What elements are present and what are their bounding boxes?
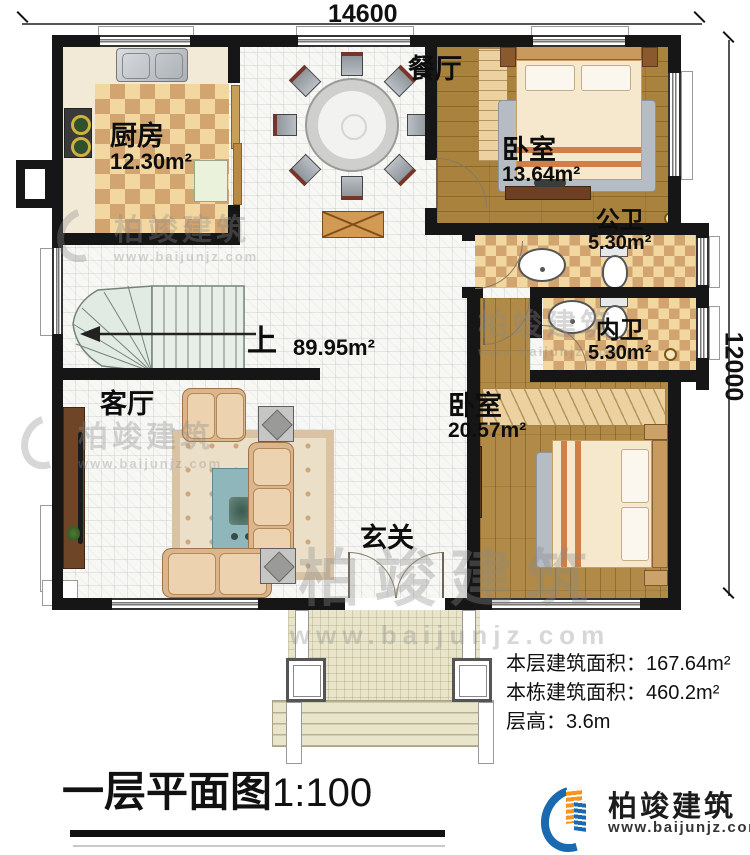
dimension-tick [16, 11, 28, 23]
stat-floor-area-value: 167.64m² [646, 653, 731, 675]
dining-chair [341, 52, 363, 76]
bedroom2-area: 20.57m² [448, 420, 526, 442]
public-bath-area: 5.30m² [588, 233, 651, 254]
burner [71, 137, 91, 157]
wall-bedroom2-left [467, 298, 480, 610]
porch-post [478, 702, 494, 764]
stat-floor-area: 本层建筑面积：167.64m² [506, 650, 731, 679]
side-table [258, 406, 294, 442]
quilt-stripe [575, 441, 581, 567]
stat-storey-height-value: 3.6m [566, 711, 610, 733]
stairs-up-text: 上 [247, 325, 277, 358]
table-dot [231, 533, 238, 540]
room-label-living: 客厅 [100, 390, 154, 418]
kitchen-sliding-door [231, 85, 240, 149]
sink-basin [122, 53, 150, 79]
porch-steps [272, 700, 494, 747]
window [696, 308, 709, 358]
room-label-ensuite-bath: 内卫 5.30m² [588, 318, 651, 364]
sofa-cushion [253, 448, 291, 486]
stat-storey-height: 层高：3.6m [506, 708, 731, 737]
entrance-opening [345, 598, 445, 610]
sofa-bottom [162, 548, 272, 598]
plant-icon [67, 526, 80, 541]
floor-plan-canvas: 柏竣建筑 www.baijunjz.com 柏竣建筑 www.baijunjz.… [0, 0, 750, 855]
dining-table [305, 78, 399, 172]
tv-screen [78, 432, 83, 544]
brand-logo-icon [540, 781, 602, 843]
bedroom1-name: 卧室 [502, 135, 556, 165]
brand-website: www.baijunjz.com [608, 819, 750, 836]
window-sill [681, 71, 693, 180]
public-bath-toilet [602, 255, 628, 289]
quilt-stripe [561, 441, 567, 567]
wall-ensuite-bottom [530, 370, 709, 382]
wall-ensuite-inner [530, 298, 542, 338]
column-detail [459, 665, 487, 697]
nightstand [644, 424, 668, 440]
room-label-dining: 餐厅 [408, 55, 462, 83]
window [100, 35, 190, 47]
wall-kitchen-right [228, 35, 240, 83]
wall-right-lower [668, 382, 681, 610]
wall-bath-left [462, 223, 475, 241]
fridge [194, 160, 228, 202]
window [112, 598, 258, 610]
public-bath-name: 公卫 [596, 207, 644, 234]
window-sill [709, 236, 720, 288]
plan-title-text: 一层平面图 [62, 768, 272, 815]
room-label-public-bath: 公卫 5.30m² [588, 208, 651, 254]
title-underline-shadow [73, 845, 445, 847]
dimension-right-label: 12000 [719, 322, 748, 412]
window [52, 248, 63, 334]
nightstand [500, 47, 516, 67]
pillow [525, 65, 575, 91]
room-label-foyer: 玄关 [360, 524, 414, 552]
window [298, 35, 410, 47]
door-leaf [348, 552, 350, 598]
public-bath-sink [518, 248, 566, 282]
logo-building-blue [574, 800, 586, 832]
kitchen-double-sink [116, 48, 188, 82]
side-table [260, 548, 296, 584]
stairs [60, 282, 262, 376]
hall-area-label: 89.95m² [293, 336, 375, 359]
brand-logo: 柏竣建筑 www.baijunjz.com [540, 775, 745, 850]
ensuite-bath-area: 5.30m² [588, 343, 651, 364]
wall-kitchen-bottom [52, 233, 240, 245]
flue-niche [16, 160, 54, 208]
stat-building-area: 本栋建筑面积：460.2m² [506, 679, 731, 708]
bedroom1-area: 13.64m² [502, 164, 580, 186]
column-detail [293, 665, 321, 697]
lazy-susan [341, 114, 367, 140]
plan-title-scale: 1:100 [272, 771, 372, 815]
ensuite-bath-name: 内卫 [596, 317, 644, 344]
sideboard [322, 211, 384, 238]
room-label-kitchen: 厨房 12.30m² [110, 122, 192, 173]
tv-cabinet [63, 407, 85, 569]
sofa-cushion [168, 553, 216, 595]
wall-bedroom1-left [425, 208, 437, 223]
window [696, 238, 709, 285]
wall-stairs [52, 368, 320, 380]
porch-post [286, 702, 302, 764]
room-label-bedroom2: 卧室 20.57m² [448, 392, 526, 442]
bed [552, 440, 652, 568]
kitchen-area: 12.30m² [110, 150, 192, 173]
sofa-cushion [216, 393, 244, 439]
living-name: 客厅 [100, 389, 154, 419]
stat-floor-area-label: 本层建筑面积： [506, 653, 646, 675]
dining-chair [341, 176, 363, 200]
shower-head-icon [664, 348, 677, 361]
pillow [621, 449, 649, 503]
pillow [621, 507, 649, 561]
nightstand [644, 570, 668, 586]
window [533, 35, 625, 47]
stat-storey-height-label: 层高： [506, 711, 566, 733]
kitchen-sliding-door [233, 143, 242, 205]
title-underline [70, 830, 445, 837]
stove-cooktop [64, 108, 92, 158]
dimension-tick [693, 11, 705, 23]
hall-area: 89.95m² [293, 335, 375, 360]
stat-building-area-label: 本栋建筑面积： [506, 682, 646, 704]
foyer-name: 玄关 [360, 523, 414, 553]
burner [71, 115, 91, 135]
wall-bath-separator [530, 287, 709, 298]
dining-chair [273, 114, 297, 136]
bed-headboard [652, 440, 668, 568]
dimension-line-right [728, 40, 730, 596]
porch-column [286, 658, 326, 702]
stairs-up-label: 上 [247, 326, 277, 358]
sink-basin [155, 53, 183, 79]
bed-headboard [516, 46, 642, 60]
stats-block: 本层建筑面积：167.64m² 本栋建筑面积：460.2m² 层高：3.6m [506, 650, 731, 737]
sofa-cushion [253, 488, 291, 526]
nightstand [642, 47, 658, 67]
door-leaf [436, 158, 438, 208]
plan-title: 一层平面图1:100 [62, 758, 372, 819]
porch-column [452, 658, 492, 702]
kitchen-name: 厨房 [110, 121, 164, 151]
door-leaf [483, 298, 485, 345]
bedroom2-name: 卧室 [448, 391, 502, 421]
sofa-cushion [187, 393, 215, 439]
stat-building-area-value: 460.2m² [646, 682, 719, 704]
door-leaf [442, 552, 444, 598]
room-label-bedroom1: 卧室 13.64m² [502, 136, 580, 186]
dimension-top-label: 14600 [328, 0, 398, 29]
window [668, 73, 681, 176]
dining-name: 餐厅 [408, 54, 462, 84]
window [492, 598, 640, 610]
sofa-seat [182, 388, 246, 442]
desk [505, 186, 591, 200]
pillow [581, 65, 631, 91]
